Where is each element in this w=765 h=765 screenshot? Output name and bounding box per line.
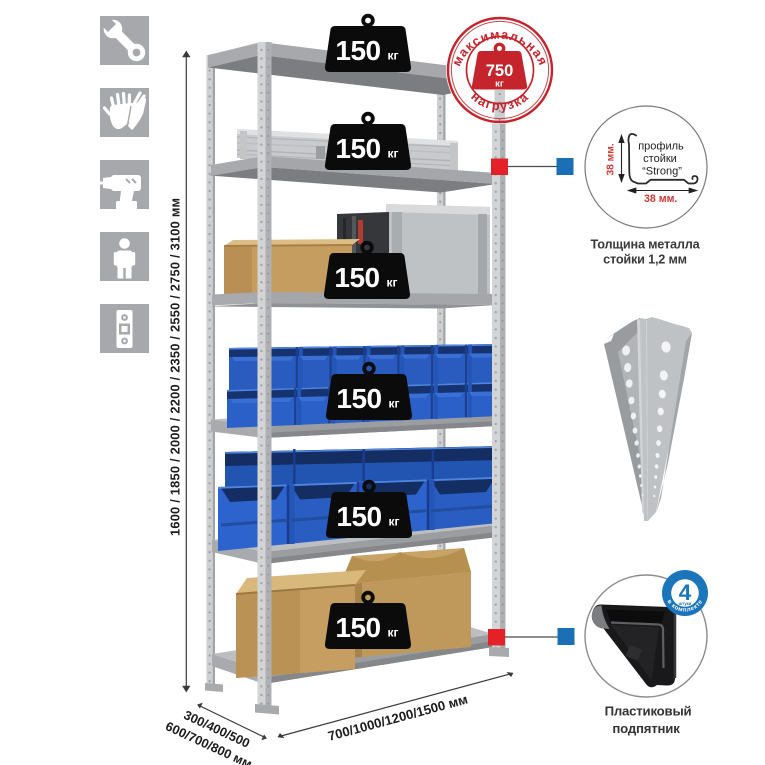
svg-text:стойки 1,2 мм: стойки 1,2 мм (603, 253, 687, 267)
svg-text:Пластиковый: Пластиковый (605, 704, 692, 719)
svg-text:подпятник: подпятник (612, 721, 680, 736)
svg-text:кг: кг (386, 276, 397, 290)
svg-text:кг: кг (388, 515, 399, 529)
svg-text:150: 150 (335, 35, 380, 66)
svg-text:150: 150 (336, 501, 381, 532)
svg-text:Толщина металла: Толщина металла (591, 238, 701, 252)
svg-text:кг: кг (387, 626, 398, 640)
svg-text:кг: кг (388, 397, 399, 411)
svg-text:150: 150 (335, 133, 380, 164)
svg-text:стойки: стойки (643, 153, 677, 165)
svg-text:кг: кг (495, 79, 504, 90)
svg-text:150: 150 (336, 383, 381, 414)
svg-text:38 мм.: 38 мм. (644, 193, 677, 205)
svg-text:750: 750 (486, 62, 514, 80)
svg-text:“Strong”: “Strong” (642, 166, 682, 178)
svg-text:кг: кг (387, 147, 398, 161)
svg-text:150: 150 (335, 612, 380, 643)
svg-text:38 мм.: 38 мм. (606, 143, 617, 175)
svg-text:150: 150 (334, 262, 379, 293)
svg-text:профиль: профиль (638, 141, 684, 153)
svg-text:штуки: штуки (679, 601, 692, 606)
svg-text:кг: кг (387, 49, 398, 63)
svg-text:1600 / 1850 / 2000 / 2200 / 23: 1600 / 1850 / 2000 / 2200 / 2350 / 2550 … (168, 198, 183, 536)
